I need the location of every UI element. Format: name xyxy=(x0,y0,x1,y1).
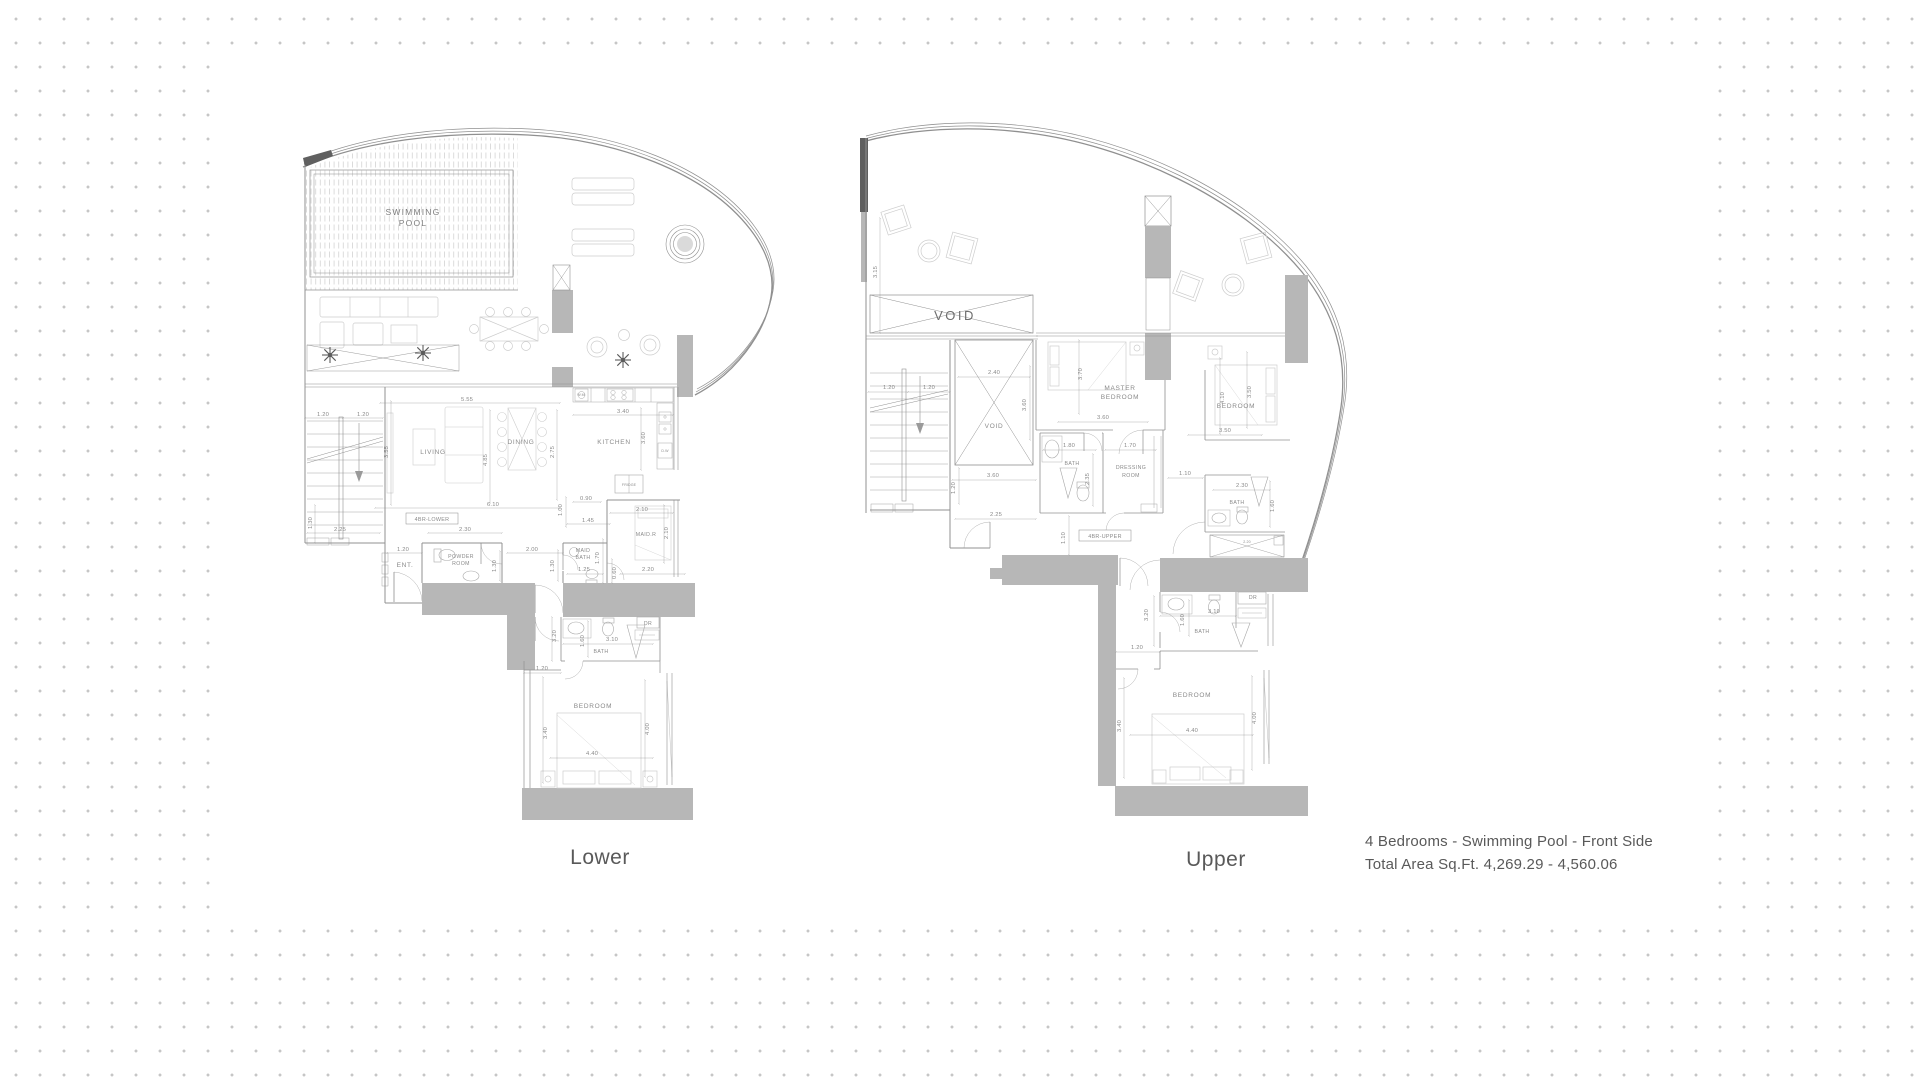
dimension-label: 3.40 xyxy=(543,727,549,739)
dimension-label: 3.40 xyxy=(617,409,629,415)
plant-icon xyxy=(615,352,631,368)
plant-icon xyxy=(415,345,431,361)
dimension-label: 2.10 xyxy=(664,527,670,539)
room-label: DINING xyxy=(508,439,535,446)
dimension-label: 4.10 xyxy=(1220,392,1226,404)
dimension-label: 4.85 xyxy=(483,454,489,466)
dimension-label: 2.25 xyxy=(334,527,346,533)
dimension-label: 3.60 xyxy=(1022,399,1028,411)
dimension-label: 1.70 xyxy=(595,552,601,564)
dimension-label: 3.50 xyxy=(1247,386,1253,398)
room-label: POOL xyxy=(399,218,427,228)
dimension-label: 0.60 xyxy=(612,567,618,579)
dimension-label: 4.00 xyxy=(1252,712,1258,724)
room-label: BATH xyxy=(1194,629,1209,635)
dimension-label: 1.60 xyxy=(1180,614,1186,626)
dimension-label: 3.60 xyxy=(1097,415,1109,421)
hatched-closet xyxy=(1210,535,1284,557)
dimension-label: 1.00 xyxy=(558,504,564,516)
dimension-label: 3.55 xyxy=(384,446,390,458)
dimension-label: 3.10 xyxy=(1208,609,1220,615)
room-label: POWDER xyxy=(448,554,474,560)
room-label: BEDROOM xyxy=(1101,394,1140,401)
dimension-label: 2.40 xyxy=(988,370,1000,376)
right-wall-pillar xyxy=(1285,275,1308,363)
dimension-label: 2.75 xyxy=(550,446,556,458)
room-label: DR xyxy=(1249,595,1257,601)
plant-icon xyxy=(322,347,338,363)
jacuzzi xyxy=(666,225,704,263)
dimension-label: 1.60 xyxy=(580,635,586,647)
dimension-label: 3.70 xyxy=(1078,368,1084,380)
bottom-wing-walls xyxy=(990,555,1308,816)
room-label: KITCHEN xyxy=(597,439,630,446)
plan-caption: 4 Bedrooms - Swimming Pool - Front Side … xyxy=(1365,830,1653,876)
bottom-bath xyxy=(524,617,660,670)
dimension-label: 2.25 xyxy=(990,512,1002,518)
dimension-label: 1.20 xyxy=(536,666,548,672)
room-label: BATH xyxy=(1064,461,1079,467)
dimension-label: 2.10 xyxy=(636,507,648,513)
dimension-label: 3.60 xyxy=(987,473,999,479)
wall-pillars xyxy=(552,265,693,397)
room-label: VOID xyxy=(985,423,1004,430)
room-label: BATH xyxy=(575,555,590,561)
room-label: 4BR-LOWER xyxy=(415,517,450,523)
dimension-label: 1.20 xyxy=(317,412,329,418)
room-label: MAID.R xyxy=(636,532,657,538)
dimension-label: 1.60 xyxy=(1270,500,1276,512)
dimension-label: 2.30 xyxy=(1236,483,1248,489)
bottom-bath xyxy=(1116,592,1266,689)
dimension-label: 5.55 xyxy=(461,397,473,403)
elevator-shaft xyxy=(1145,196,1171,380)
corridor-doors xyxy=(1120,558,1160,590)
dimension-label: FRIDGE xyxy=(622,483,637,487)
dimension-label: 1.80 xyxy=(1063,443,1075,449)
dimension-label: 1.45 xyxy=(582,518,594,524)
dimension-label: 3.20 xyxy=(552,630,558,642)
dimension-label: 0.90 xyxy=(580,496,592,502)
room-label: MAID xyxy=(576,548,591,554)
room-label: MASTER xyxy=(1104,385,1135,392)
dimension-label: 1.20 xyxy=(951,482,957,494)
dimension-label: 3.15 xyxy=(873,266,879,278)
caption-line2: Total Area Sq.Ft. 4,269.29 - 4,560.06 xyxy=(1365,853,1653,876)
room-label: DRESSING xyxy=(1116,465,1146,471)
room-label: BATH xyxy=(1229,500,1244,506)
upper-plan-title: Upper xyxy=(1146,848,1286,872)
room-label: SWIMMING xyxy=(386,207,441,217)
room-label: BEDROOM xyxy=(574,703,613,710)
room-label: 4BR-UPPER xyxy=(1088,534,1122,540)
staircase xyxy=(307,417,383,539)
dimension-label: D.W xyxy=(661,449,669,453)
dimension-label: 3.50 xyxy=(1219,428,1231,434)
dimension-label: 4.40 xyxy=(1186,728,1198,734)
dimension-label: 1.20 xyxy=(883,385,895,391)
dimension-label: 3.40 xyxy=(1117,720,1123,732)
lower-plan-title: Lower xyxy=(530,846,670,870)
terrace-furniture xyxy=(881,205,1272,302)
dimension-label: 1.10 xyxy=(1179,471,1191,477)
bottom-wing-walls xyxy=(422,583,695,820)
dimension-label: 2.35 xyxy=(1085,473,1091,485)
dimension-label: 2.00 xyxy=(526,547,538,553)
room-label: BEDROOM xyxy=(1173,692,1212,699)
dimension-label: 1.20 xyxy=(357,412,369,418)
dimension-label: 1.30 xyxy=(492,560,498,572)
room-label: ROOM xyxy=(1122,473,1140,479)
dimension-label: 3.10 xyxy=(606,637,618,643)
dimension-label: 4.40 xyxy=(586,751,598,757)
dimension-label: 2.30 xyxy=(459,527,471,533)
dimension-label: 4.00 xyxy=(645,723,651,735)
room-label: ENT. xyxy=(397,562,414,569)
dimension-label: 1.30 xyxy=(550,560,556,572)
dimension-label: 1.30 xyxy=(308,517,314,529)
room-label: VOID xyxy=(934,308,976,323)
staircase xyxy=(870,340,990,548)
room-label: ROOM xyxy=(452,561,470,567)
room-label: LIVING xyxy=(420,449,446,456)
dimension-label: 3.60 xyxy=(641,432,647,444)
dimension-label: 1.70 xyxy=(1124,443,1136,449)
dimension-label: 2.20 xyxy=(1243,540,1250,544)
master-bath xyxy=(1040,430,1163,531)
room-label: DR xyxy=(644,621,652,627)
room-label: BATH xyxy=(593,649,608,655)
dimension-label: 1.10 xyxy=(1061,532,1067,544)
dressing-shelves xyxy=(1141,436,1161,512)
dimension-label: 3.20 xyxy=(1144,609,1150,621)
dimension-label: 2.20 xyxy=(642,567,654,573)
dimension-label: 1.20 xyxy=(1131,645,1143,651)
upper-floor-plan: VOIDVOIDMASTERBEDROOMBATHDRESSINGROOMBED… xyxy=(858,118,1358,833)
dimension-label: W.M xyxy=(577,393,585,397)
dimension-label: 1.25 xyxy=(578,567,590,573)
dimension-label: 1.20 xyxy=(397,547,409,553)
caption-line1: 4 Bedrooms - Swimming Pool - Front Side xyxy=(1365,830,1653,853)
living-dining-furniture xyxy=(387,407,547,493)
lower-floor-plan: SWIMMINGPOOLLIVINGDININGKITCHENENT.POWDE… xyxy=(295,125,775,835)
bottom-bedroom xyxy=(1152,594,1273,784)
dimension-label: 1.20 xyxy=(923,385,935,391)
dark-wall-segment xyxy=(860,138,868,212)
dimension-label: 6.10 xyxy=(487,502,499,508)
